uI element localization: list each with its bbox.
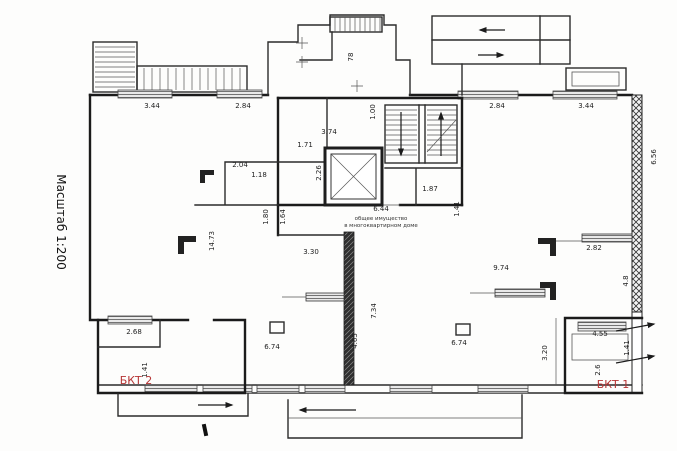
dimension-label: 1.41 (623, 340, 631, 356)
column (456, 324, 470, 335)
dimension-label: 7.34 (370, 303, 378, 319)
dimension-label: 2.84 (489, 102, 505, 110)
dimension-label: 14.73 (208, 231, 216, 251)
center-note: 6.44 общее имущество в многоквартирном д… (344, 205, 418, 229)
column (538, 238, 556, 256)
entrance-vestibule (268, 15, 410, 95)
center-bearing-wall (344, 232, 354, 385)
outer-walls (90, 95, 642, 393)
dimension-label: 3.74 (321, 128, 337, 136)
dimension-label: 1.41 (453, 201, 461, 217)
dimension-label: 3.20 (541, 345, 549, 361)
hatched-wall-right (632, 95, 642, 393)
column (270, 322, 284, 333)
dimension-label: 78 (347, 53, 355, 62)
ramp-bottom-right (288, 395, 522, 438)
dimension-label: 6.74 (451, 339, 467, 347)
ramp-bottom-left (118, 394, 248, 436)
floor-plan-page: 6.44 общее имущество в многоквартирном д… (0, 0, 677, 451)
dimension-label: 2.68 (126, 328, 142, 336)
dimension-label: 3.30 (303, 248, 319, 256)
room-label: БКТ 1 (597, 378, 630, 391)
dimension-label: 3.44 (144, 102, 160, 110)
elevator-shaft (325, 148, 382, 205)
dimension-label: 2.6 (594, 364, 602, 376)
dimension-label: 1.80 (262, 209, 270, 225)
dimension-label: 1.87 (422, 185, 438, 193)
scale-label: Масштаб 1:200 (54, 174, 68, 269)
floor-plan-drawing: 6.44 общее имущество в многоквартирном д… (0, 0, 677, 451)
dimension-label: 4.55 (592, 330, 608, 338)
center-dimension: 6.44 (373, 205, 389, 213)
room-label: БКТ 2 (120, 374, 153, 387)
dimension-label: 3.44 (578, 102, 594, 110)
common-property-note-line2: в многоквартирном доме (344, 223, 418, 229)
dimension-label: 4.65 (351, 333, 359, 349)
column (178, 236, 196, 254)
dimension-label: 6.74 (264, 343, 280, 351)
dimension-label: 2.84 (235, 102, 251, 110)
common-property-note-line1: общее имущество (355, 216, 408, 222)
fire-escape-stair (93, 42, 247, 92)
dimension-label: 4.8 (622, 275, 630, 286)
dimension-label: 2.82 (586, 244, 602, 252)
dimension-label: 2.04 (232, 161, 248, 169)
dimension-label: 1.71 (297, 141, 313, 149)
dimension-label: 2.26 (315, 165, 323, 181)
column (200, 170, 214, 183)
staircase (385, 105, 457, 163)
tick-mark (202, 424, 208, 437)
dimension-label: 1.18 (251, 171, 267, 179)
dimension-label: 1.00 (369, 104, 377, 120)
dimension-label: 9.74 (493, 264, 509, 272)
ramp-top (432, 16, 626, 95)
dimension-label: 6.56 (650, 149, 658, 165)
dimension-label: 1.64 (279, 209, 287, 225)
